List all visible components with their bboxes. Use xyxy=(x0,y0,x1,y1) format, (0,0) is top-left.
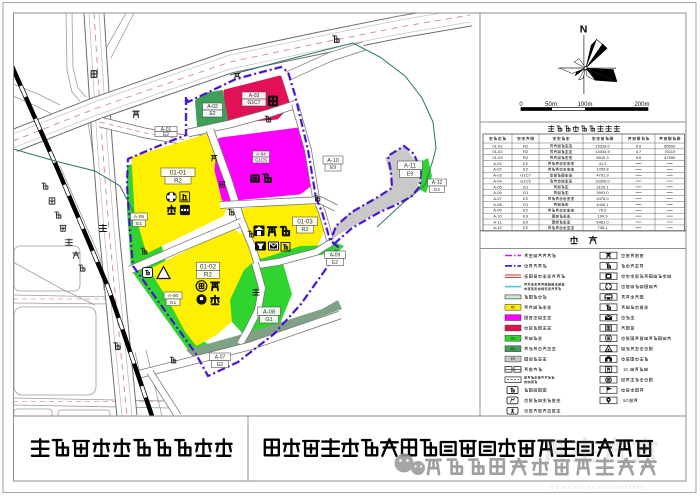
svg-text:R2: R2 xyxy=(174,178,182,184)
svg-text:R2: R2 xyxy=(301,227,308,233)
svg-text:G1C7: G1C7 xyxy=(520,173,531,178)
svg-text:R2: R2 xyxy=(204,272,212,279)
svg-text:47650: 47650 xyxy=(664,155,676,160)
svg-text:A-04: A-04 xyxy=(256,152,266,157)
svg-text:G1: G1 xyxy=(136,221,143,227)
svg-text:A-11: A-11 xyxy=(404,163,417,169)
svg-text:A-08: A-08 xyxy=(493,202,502,207)
svg-text:R2: R2 xyxy=(523,155,529,160)
svg-text:01-03: 01-03 xyxy=(297,219,313,225)
svg-text:A-05: A-05 xyxy=(134,214,144,220)
svg-text:A-02: A-02 xyxy=(493,167,502,172)
svg-text:G1: G1 xyxy=(511,337,516,341)
svg-text:A-06: A-06 xyxy=(493,190,502,195)
svg-text:G1C5: G1C5 xyxy=(255,158,267,163)
svg-text:A-06: A-06 xyxy=(168,293,178,299)
svg-text:E2: E2 xyxy=(523,225,529,230)
svg-text:5.6: 5.6 xyxy=(636,155,642,160)
svg-text:E9: E9 xyxy=(330,165,336,171)
svg-text:E2: E2 xyxy=(434,187,440,193)
svg-text:m p . w e i x i n . q q . c o: m p . w e i x i n . q q . c o m s h e n … xyxy=(550,485,644,491)
svg-text:E2: E2 xyxy=(511,347,515,351)
svg-text:A-05: A-05 xyxy=(493,184,502,189)
svg-text:R2: R2 xyxy=(523,149,529,154)
svg-text:G1C7: G1C7 xyxy=(247,100,260,106)
svg-text:A-09: A-09 xyxy=(493,208,502,213)
svg-text:G1: G1 xyxy=(523,184,529,189)
svg-text:E9: E9 xyxy=(523,219,529,224)
svg-text:E9: E9 xyxy=(523,214,529,219)
svg-text:8510.3: 8510.3 xyxy=(596,155,609,160)
svg-text:E2: E2 xyxy=(163,132,169,138)
svg-text:G1: G1 xyxy=(523,190,529,195)
svg-text:R2: R2 xyxy=(511,305,515,309)
svg-text:A-12: A-12 xyxy=(432,180,443,186)
svg-text:A-10: A-10 xyxy=(327,158,339,164)
svg-text:E9: E9 xyxy=(511,357,515,361)
svg-text:85500: 85500 xyxy=(664,143,676,148)
svg-text:3991.0: 3991.0 xyxy=(596,190,609,195)
svg-text:A-08: A-08 xyxy=(263,309,275,315)
svg-text:70110: 70110 xyxy=(664,149,676,154)
svg-text:A-10: A-10 xyxy=(493,214,502,219)
svg-text:01-01: 01-01 xyxy=(170,170,187,177)
svg-text:E2: E2 xyxy=(523,196,529,201)
svg-text:E2: E2 xyxy=(523,167,529,172)
svg-text:N: N xyxy=(580,24,588,36)
svg-text:A-07: A-07 xyxy=(493,196,502,201)
svg-text:3129.1: 3129.1 xyxy=(596,184,609,189)
svg-text:01-02: 01-02 xyxy=(492,149,503,154)
svg-text:A-02: A-02 xyxy=(207,104,218,110)
svg-text:01-03: 01-03 xyxy=(492,155,503,160)
svg-text:E2: E2 xyxy=(523,208,529,213)
svg-text:16309.0: 16309.0 xyxy=(595,178,610,183)
svg-text:4791.9: 4791.9 xyxy=(596,173,609,178)
svg-text:A-07: A-07 xyxy=(215,355,226,361)
svg-text:01-02: 01-02 xyxy=(200,264,217,271)
svg-text:E2: E2 xyxy=(217,362,223,368)
svg-text:2476.0: 2476.0 xyxy=(596,196,609,201)
svg-text:5.6: 5.6 xyxy=(636,143,642,148)
svg-text:E2: E2 xyxy=(209,111,215,117)
svg-text:G1: G1 xyxy=(170,300,177,306)
svg-text:G1: G1 xyxy=(265,317,272,323)
svg-text:E9: E9 xyxy=(407,171,414,177)
svg-text:41.2: 41.2 xyxy=(599,161,608,166)
svg-text:A-12: A-12 xyxy=(493,225,502,230)
svg-text:4449.1: 4449.1 xyxy=(596,202,609,207)
svg-text:R2: R2 xyxy=(523,143,529,148)
svg-text:A-09: A-09 xyxy=(330,253,341,259)
svg-text:4.7: 4.7 xyxy=(636,149,642,154)
svg-text:A-03: A-03 xyxy=(493,173,502,178)
svg-text:01-01: 01-01 xyxy=(492,143,503,148)
svg-text:G1: G1 xyxy=(523,202,529,207)
svg-text:1059.8: 1059.8 xyxy=(596,167,609,172)
svg-text:5481.0: 5481.0 xyxy=(596,219,609,224)
svg-text:738.1: 738.1 xyxy=(597,225,608,230)
svg-text:A-01: A-01 xyxy=(493,161,502,166)
svg-text:E2: E2 xyxy=(523,161,529,166)
svg-text:A-03: A-03 xyxy=(249,93,260,99)
svg-text:15326.0: 15326.0 xyxy=(595,143,610,148)
svg-text:76.9: 76.9 xyxy=(599,208,608,213)
svg-text:G1C5: G1C5 xyxy=(520,178,531,183)
svg-text:104.3: 104.3 xyxy=(597,214,608,219)
svg-text:A-04: A-04 xyxy=(493,178,502,183)
svg-text:E2: E2 xyxy=(332,260,338,266)
svg-text:A-11: A-11 xyxy=(493,219,502,224)
svg-text:18: 18 xyxy=(623,367,628,372)
svg-text:5G: 5G xyxy=(623,398,629,403)
svg-text:14034.9: 14034.9 xyxy=(595,149,610,154)
